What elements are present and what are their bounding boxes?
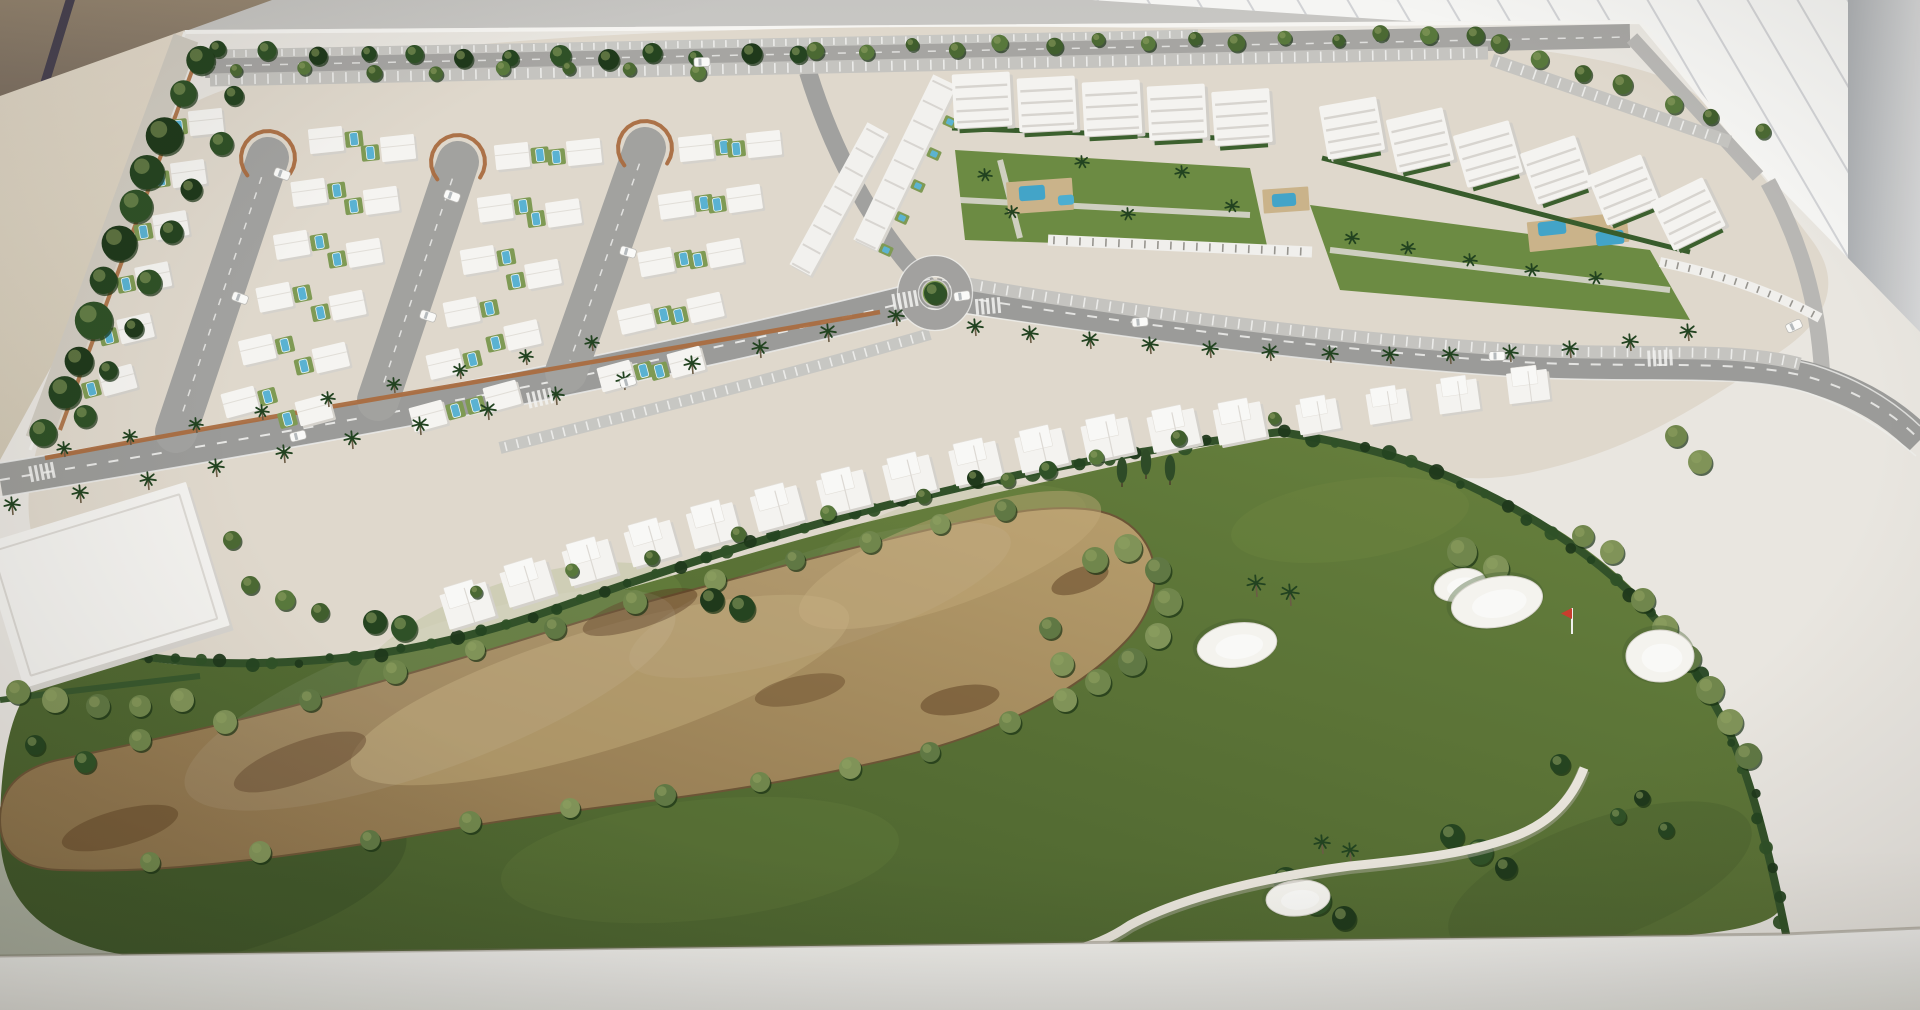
swimming-pool — [1019, 185, 1046, 202]
townhouse — [1435, 373, 1483, 417]
model-svg — [0, 0, 1920, 1010]
apartment-block — [952, 71, 1016, 131]
car — [1489, 351, 1505, 360]
apartment-block — [1147, 83, 1211, 143]
apartment-block — [1082, 79, 1146, 139]
townhouse — [1505, 364, 1552, 407]
apartment-block — [1211, 88, 1276, 149]
swimming-pool — [1058, 194, 1075, 205]
car — [1132, 317, 1149, 327]
apartment-block — [1319, 96, 1389, 163]
swimming-pool — [1272, 193, 1297, 208]
architectural-model-photo — [0, 0, 1920, 1010]
apartment-block — [1017, 75, 1081, 135]
car — [694, 57, 710, 67]
car — [953, 290, 970, 301]
townhouse — [1365, 383, 1413, 427]
